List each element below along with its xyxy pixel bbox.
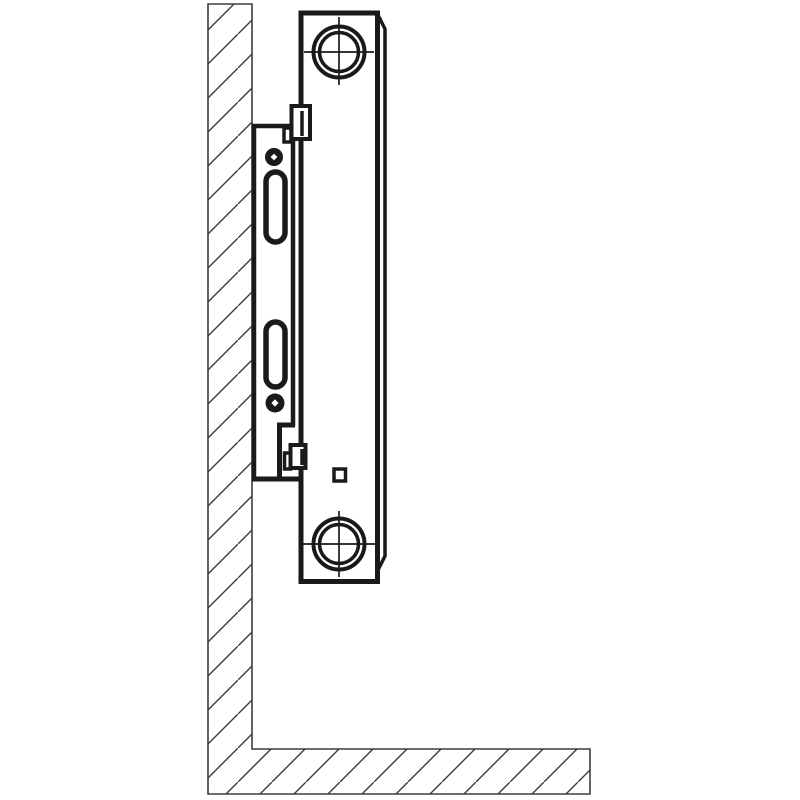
radiator-profile: [301, 13, 385, 582]
bracket-slot-upper: [266, 172, 285, 242]
radiator-panel: [301, 13, 378, 582]
diagram-canvas: [0, 0, 800, 800]
bracket-slot-lower: [266, 322, 285, 387]
vent-square: [334, 469, 346, 481]
radiator-mounting-diagram: [0, 0, 800, 800]
